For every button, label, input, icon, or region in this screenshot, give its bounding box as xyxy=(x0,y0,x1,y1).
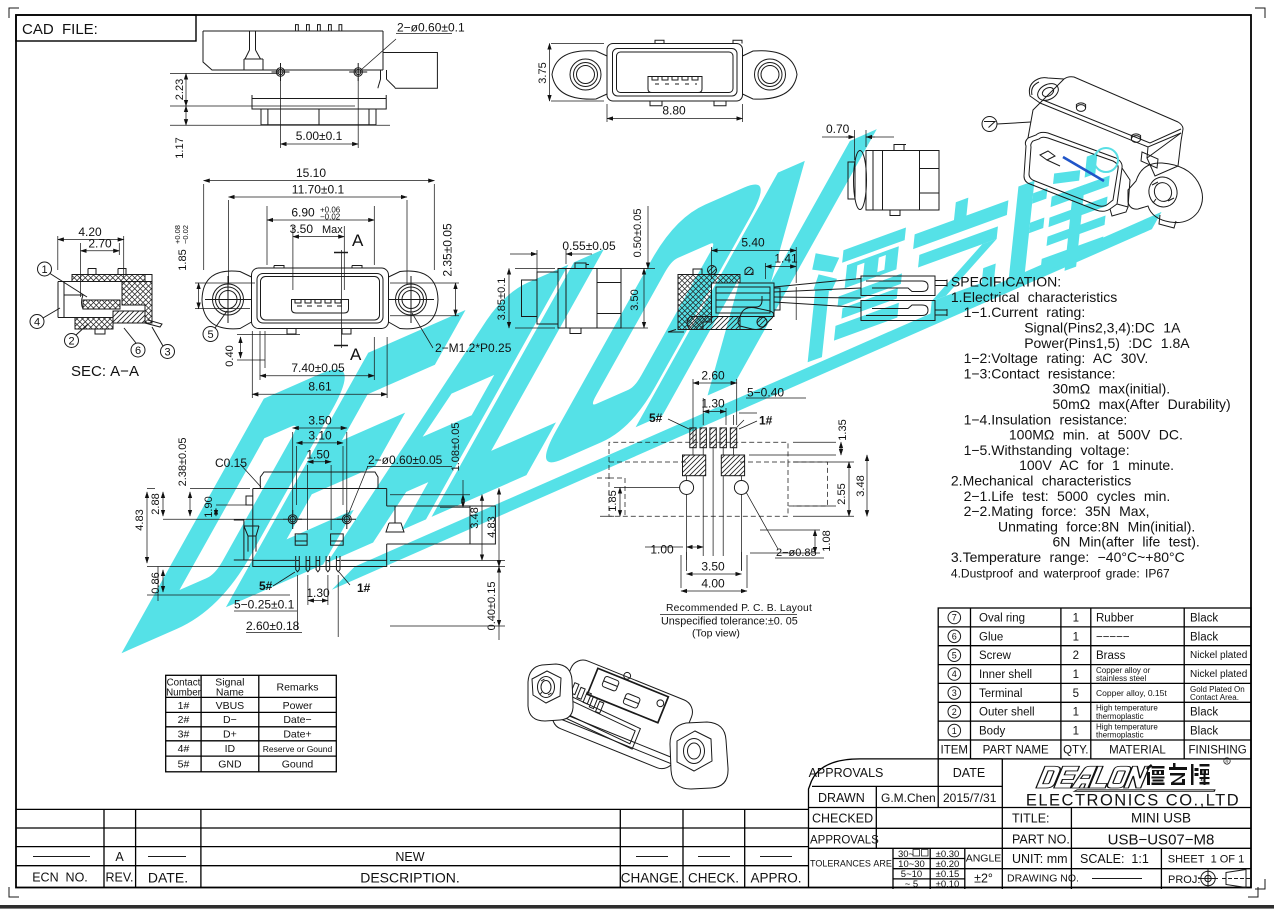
svg-text:1−1.Current rating:: 1−1.Current rating: xyxy=(964,304,1086,320)
svg-text:4.83: 4.83 xyxy=(486,516,498,537)
svg-text:2#: 2# xyxy=(178,714,190,726)
svg-text:Contact Area.: Contact Area. xyxy=(1190,693,1239,702)
svg-text:Black: Black xyxy=(1190,613,1218,625)
svg-text:4.83: 4.83 xyxy=(134,509,146,530)
svg-text:7: 7 xyxy=(952,613,957,623)
svg-text:1.50: 1.50 xyxy=(306,448,330,462)
svg-text:3: 3 xyxy=(952,688,957,698)
svg-text:5#: 5# xyxy=(649,411,663,425)
svg-text:(Top view): (Top view) xyxy=(692,628,740,640)
svg-text:2: 2 xyxy=(68,335,74,347)
svg-text:MINI USB: MINI USB xyxy=(1131,811,1191,826)
svg-text:5: 5 xyxy=(207,329,213,341)
svg-text:2−2.Mating force: 35N Max,: 2−2.Mating force: 35N Max, xyxy=(964,503,1150,519)
svg-text:DESCRIPTION.: DESCRIPTION. xyxy=(360,870,460,886)
svg-text:15.10: 15.10 xyxy=(296,166,326,180)
svg-text:Power: Power xyxy=(283,700,313,712)
svg-text:3#: 3# xyxy=(178,728,190,740)
svg-text:3.75: 3.75 xyxy=(537,62,549,83)
svg-text:1: 1 xyxy=(1073,669,1079,681)
svg-text:6N Min(after life test).: 6N Min(after life test). xyxy=(1053,534,1200,550)
svg-text:Max: Max xyxy=(322,224,343,236)
svg-text:2.60±0.18: 2.60±0.18 xyxy=(246,619,300,633)
svg-text:Black: Black xyxy=(1190,631,1218,643)
svg-text:APPRO.: APPRO. xyxy=(750,871,801,886)
svg-text:PART NO.: PART NO. xyxy=(1012,833,1070,847)
svg-text:3.50: 3.50 xyxy=(629,289,641,310)
svg-text:3.10: 3.10 xyxy=(308,429,332,443)
svg-text:3: 3 xyxy=(164,346,170,358)
svg-text:1.Electrical characteristics: 1.Electrical characteristics xyxy=(951,289,1117,305)
svg-text:D+: D+ xyxy=(223,728,237,740)
svg-text:6: 6 xyxy=(135,345,141,357)
svg-text:2−ø0.60±0.05: 2−ø0.60±0.05 xyxy=(368,453,443,467)
svg-text:2.70: 2.70 xyxy=(88,237,112,251)
svg-text:1.90: 1.90 xyxy=(203,496,215,517)
svg-text:−−−−−: −−−−− xyxy=(1096,631,1130,643)
svg-text:1#: 1# xyxy=(178,700,190,712)
svg-text:FINISHING: FINISHING xyxy=(1189,745,1247,757)
svg-text:2−ø0.85: 2−ø0.85 xyxy=(776,547,817,559)
svg-text:−0.02: −0.02 xyxy=(181,225,190,244)
svg-text:Glue: Glue xyxy=(979,631,1003,643)
svg-text:1.41: 1.41 xyxy=(774,252,798,266)
svg-text:1: 1 xyxy=(1073,613,1079,625)
svg-text:Oval ring: Oval ring xyxy=(979,613,1025,625)
svg-text:0.40±0.15: 0.40±0.15 xyxy=(486,582,498,631)
svg-text:Brass: Brass xyxy=(1096,650,1126,662)
svg-text:Inner shell: Inner shell xyxy=(979,669,1032,681)
svg-text:1: 1 xyxy=(1073,726,1079,738)
svg-text:NEW: NEW xyxy=(395,850,424,864)
svg-text:8.61: 8.61 xyxy=(308,380,332,394)
svg-text:Recommended P. C. B. Layout: Recommended P. C. B. Layout xyxy=(666,603,812,614)
svg-text:Reserve or Gound: Reserve or Gound xyxy=(263,744,333,754)
svg-text:5.00±0.1: 5.00±0.1 xyxy=(296,129,343,143)
svg-text:TITLE:: TITLE: xyxy=(1012,812,1050,826)
svg-text:50mΩ max(After Durability): 50mΩ max(After Durability) xyxy=(1053,396,1231,412)
svg-text:SPECIFICATION:: SPECIFICATION: xyxy=(951,274,1061,290)
svg-text:1−3:Contact resistance:: 1−3:Contact resistance: xyxy=(964,365,1116,381)
svg-text:1.35: 1.35 xyxy=(837,419,849,440)
svg-text:G.M.Chen: G.M.Chen xyxy=(881,791,936,805)
svg-text:5.40: 5.40 xyxy=(741,236,765,250)
svg-text:SHEET 1 OF 1: SHEET 1 OF 1 xyxy=(1168,854,1244,866)
svg-text:6: 6 xyxy=(952,632,957,642)
svg-text:1.08±0.05: 1.08±0.05 xyxy=(450,423,462,472)
svg-text:5#: 5# xyxy=(178,759,190,771)
svg-text:2.38±0.05: 2.38±0.05 xyxy=(177,438,189,487)
svg-text:A: A xyxy=(115,850,124,864)
svg-text:Number: Number xyxy=(166,688,202,699)
svg-text:Date+: Date+ xyxy=(283,728,311,740)
svg-text:~ 5: ~ 5 xyxy=(905,879,918,890)
svg-text:1−4.Insulation resistance:: 1−4.Insulation resistance: xyxy=(964,411,1128,427)
svg-text:8.80: 8.80 xyxy=(662,104,686,118)
svg-text:1.17: 1.17 xyxy=(174,137,186,158)
svg-text:SCALE: 1:1: SCALE: 1:1 xyxy=(1080,852,1149,866)
svg-text:ITEM: ITEM xyxy=(941,745,968,757)
svg-text:thermoplastic: thermoplastic xyxy=(1096,731,1144,740)
svg-text:1: 1 xyxy=(952,726,957,736)
svg-text:2015/7/31: 2015/7/31 xyxy=(943,791,997,805)
svg-text:1.00: 1.00 xyxy=(650,543,674,557)
svg-text:0.70: 0.70 xyxy=(826,122,850,136)
svg-text:CHECKED: CHECKED xyxy=(812,812,873,826)
svg-text:1: 1 xyxy=(1073,707,1079,719)
svg-text:APPROVALS: APPROVALS xyxy=(809,766,884,780)
svg-text:2.60: 2.60 xyxy=(701,369,725,383)
svg-text:Signal(Pins2,3,4):DC 1A: Signal(Pins2,3,4):DC 1A xyxy=(1024,320,1181,336)
svg-text:4.00: 4.00 xyxy=(701,577,725,591)
svg-text:Remarks: Remarks xyxy=(276,682,318,694)
svg-text:±2°: ±2° xyxy=(974,872,993,886)
svg-text:±0.10: ±0.10 xyxy=(936,879,960,890)
svg-text:7.40±0.05: 7.40±0.05 xyxy=(291,361,345,375)
svg-text:CAD FILE:: CAD FILE: xyxy=(22,21,98,38)
svg-text:USB−US07−M8: USB−US07−M8 xyxy=(1108,832,1215,849)
svg-text:4#: 4# xyxy=(178,743,190,755)
svg-text:1#: 1# xyxy=(759,414,773,428)
svg-text:5−0.40: 5−0.40 xyxy=(747,386,784,400)
svg-text:2.88: 2.88 xyxy=(150,493,162,514)
svg-text:thermoplastic: thermoplastic xyxy=(1096,712,1144,721)
svg-text:ECN NO.: ECN NO. xyxy=(32,871,88,885)
svg-text:REV.: REV. xyxy=(105,871,133,885)
svg-text:DRAWN: DRAWN xyxy=(818,791,865,805)
svg-text:Black: Black xyxy=(1190,726,1218,738)
svg-text:QTY.: QTY. xyxy=(1063,745,1088,757)
svg-text:2.Mechanical characteristics: 2.Mechanical characteristics xyxy=(951,473,1131,489)
svg-text:1: 1 xyxy=(41,264,47,276)
svg-text:1−5.Withstanding voltage:: 1−5.Withstanding voltage: xyxy=(964,442,1130,458)
svg-text:APPROVALS: APPROVALS xyxy=(810,835,879,847)
svg-text:UNIT: mm: UNIT: mm xyxy=(1012,852,1068,866)
svg-text:1.30: 1.30 xyxy=(701,397,725,411)
svg-text:0.55±0.05: 0.55±0.05 xyxy=(562,239,616,253)
svg-text:DATE.: DATE. xyxy=(148,870,188,886)
svg-text:ANGLE: ANGLE xyxy=(966,853,1002,865)
svg-text:Copper alloy, 0.15t: Copper alloy, 0.15t xyxy=(1096,688,1167,698)
svg-text:2.23: 2.23 xyxy=(174,79,186,100)
svg-text:SEC: A−A: SEC: A−A xyxy=(71,363,139,380)
svg-text:Black: Black xyxy=(1190,707,1218,719)
svg-text:2.35±0.05: 2.35±0.05 xyxy=(441,223,455,277)
svg-text:1.30: 1.30 xyxy=(306,586,330,600)
svg-text:Terminal: Terminal xyxy=(979,688,1022,700)
svg-text:1.85: 1.85 xyxy=(607,490,619,511)
svg-text:1#: 1# xyxy=(357,581,371,595)
svg-text:PART NAME: PART NAME xyxy=(983,745,1049,757)
svg-text:3.50: 3.50 xyxy=(308,414,332,428)
svg-text:Date−: Date− xyxy=(283,714,311,726)
svg-text:4: 4 xyxy=(34,316,40,328)
svg-text:D−: D− xyxy=(223,714,237,726)
svg-text:Nickel plated: Nickel plated xyxy=(1190,650,1247,661)
svg-text:Unspecified tolerance:±0. 05: Unspecified tolerance:±0. 05 xyxy=(661,616,798,628)
svg-text:ID: ID xyxy=(225,743,236,755)
svg-text:2: 2 xyxy=(952,707,957,717)
svg-text:PROJ:: PROJ: xyxy=(1168,874,1200,886)
svg-text:−0.02: −0.02 xyxy=(320,213,341,222)
svg-text:5−0.25±0.1: 5−0.25±0.1 xyxy=(234,598,295,612)
svg-text:A: A xyxy=(352,231,364,250)
svg-text:Screw: Screw xyxy=(979,650,1012,662)
svg-text:0.50±0.05: 0.50±0.05 xyxy=(632,209,644,258)
svg-text:2−M1.2*P0.25: 2−M1.2*P0.25 xyxy=(435,341,512,355)
svg-text:4.Dustproof and waterproof gra: 4.Dustproof and waterproof grade: IP67 xyxy=(951,566,1170,580)
svg-text:TOLERANCES ARE: TOLERANCES ARE xyxy=(810,859,892,869)
svg-text:2.55: 2.55 xyxy=(836,483,848,504)
svg-text:MATERIAL: MATERIAL xyxy=(1109,745,1166,757)
svg-text:Gound: Gound xyxy=(282,759,314,771)
svg-text:Body: Body xyxy=(979,726,1005,738)
svg-text:A: A xyxy=(350,345,362,364)
svg-text:11.70±0.1: 11.70±0.1 xyxy=(292,183,345,197)
svg-text:2−ø0.60±0.1: 2−ø0.60±0.1 xyxy=(397,21,465,35)
svg-text:DATE: DATE xyxy=(953,766,985,780)
svg-text:100V AC for 1 minute.: 100V AC for 1 minute. xyxy=(1019,457,1174,473)
svg-text:0.86: 0.86 xyxy=(150,572,162,593)
svg-text:3.85±0.1: 3.85±0.1 xyxy=(496,278,508,321)
svg-text:stainless steel: stainless steel xyxy=(1096,674,1146,683)
svg-text:1−2:Voltage rating: AC 30V.: 1−2:Voltage rating: AC 30V. xyxy=(964,350,1149,366)
svg-text:CHECK.: CHECK. xyxy=(688,871,739,886)
svg-text:1.85: 1.85 xyxy=(177,249,189,270)
svg-text:VBUS: VBUS xyxy=(216,700,245,712)
svg-text:2: 2 xyxy=(1073,650,1079,662)
svg-text:3.50: 3.50 xyxy=(701,560,725,574)
svg-text:Unmating force:8N Min(initial): Unmating force:8N Min(initial). xyxy=(998,518,1195,534)
svg-text:Rubber: Rubber xyxy=(1096,613,1134,625)
svg-text:1: 1 xyxy=(1073,631,1079,643)
svg-text:DRAWING NO.: DRAWING NO. xyxy=(1007,873,1079,885)
svg-text:3.50: 3.50 xyxy=(290,222,317,236)
svg-text:0.40: 0.40 xyxy=(224,345,236,366)
svg-text:30mΩ max(initial).: 30mΩ max(initial). xyxy=(1053,381,1171,397)
svg-text:3.Temperature range: −40°C~+80: 3.Temperature range: −40°C~+80°C xyxy=(951,549,1185,565)
svg-text:5: 5 xyxy=(1073,688,1079,700)
svg-text:5#: 5# xyxy=(259,579,273,593)
svg-text:Power(Pins1,5) :DC 1.8A: Power(Pins1,5) :DC 1.8A xyxy=(1024,335,1190,351)
svg-text:CHANGE.: CHANGE. xyxy=(621,871,683,886)
svg-text:100MΩ min. at 500V DC.: 100MΩ min. at 500V DC. xyxy=(1009,427,1183,443)
svg-text:Outer shell: Outer shell xyxy=(979,707,1035,719)
svg-text:ELECTRONICS CO.,LTD: ELECTRONICS CO.,LTD xyxy=(1026,792,1240,810)
svg-text:5: 5 xyxy=(952,650,957,660)
svg-text:Name: Name xyxy=(216,687,244,699)
svg-text:Nickel plated: Nickel plated xyxy=(1190,669,1247,680)
svg-text:1.08: 1.08 xyxy=(821,530,833,551)
svg-text:4: 4 xyxy=(952,669,957,679)
svg-text:2−1.Life test: 5000 cycles min: 2−1.Life test: 5000 cycles min. xyxy=(964,488,1171,504)
svg-text:GND: GND xyxy=(218,759,242,771)
svg-text:3.48: 3.48 xyxy=(855,475,867,496)
svg-text:C0.15: C0.15 xyxy=(215,456,247,470)
svg-text:3.48: 3.48 xyxy=(469,507,481,528)
svg-text:6.90: 6.90 xyxy=(291,206,315,220)
